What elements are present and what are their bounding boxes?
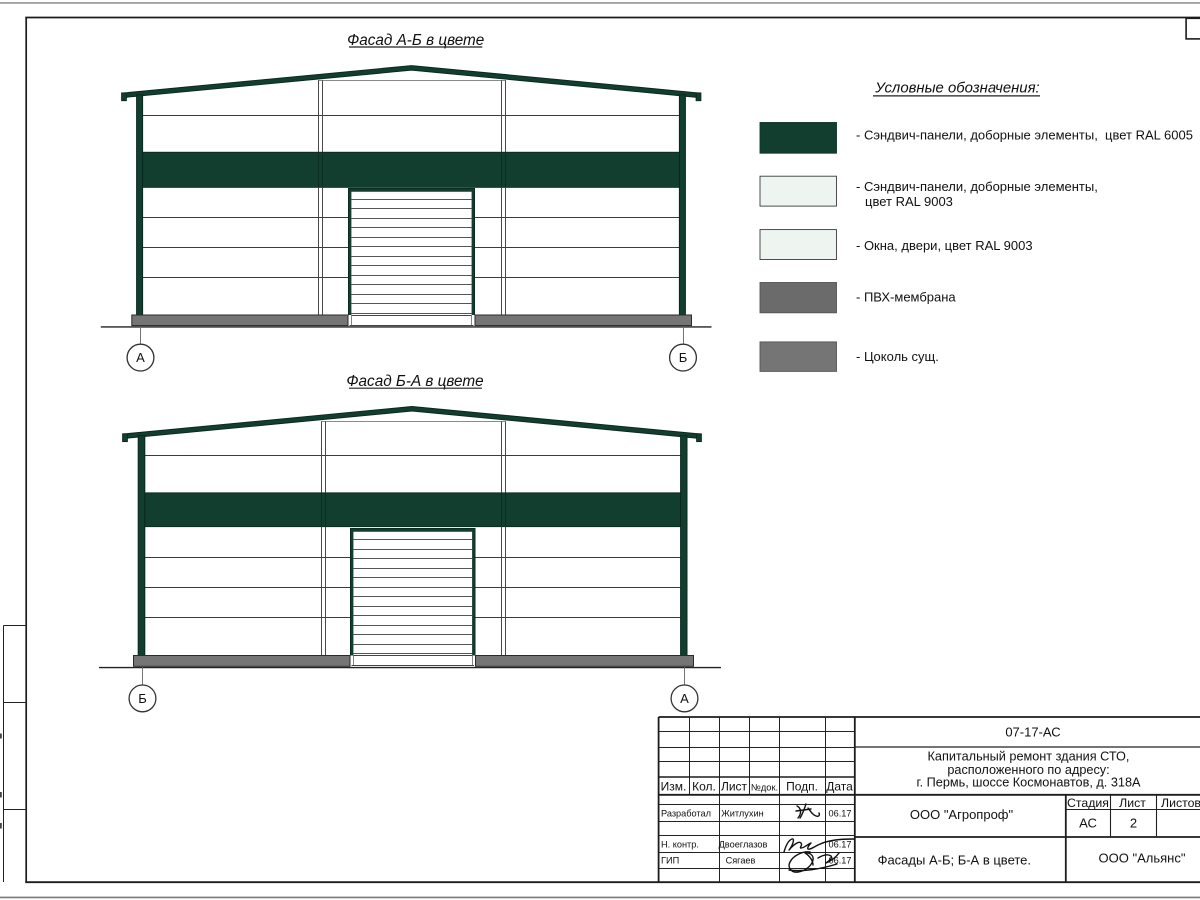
svg-text:ООО "Альянс": ООО "Альянс" xyxy=(1099,851,1186,866)
svg-text:Сягаев: Сягаев xyxy=(726,856,756,866)
svg-text:Условные обозначения:: Условные обозначения: xyxy=(874,81,1039,97)
svg-text:2: 2 xyxy=(1130,816,1137,831)
svg-text:Изм.: Изм. xyxy=(661,780,687,794)
svg-text:Н. контр.: Н. контр. xyxy=(661,840,699,850)
svg-text:Лист: Лист xyxy=(1119,796,1146,810)
svg-text:Стадия: Стадия xyxy=(1067,796,1109,810)
svg-text:Б: Б xyxy=(679,350,688,365)
svg-text:Листов: Листов xyxy=(1161,796,1200,810)
svg-text:- Сэндвич-панели, доборные эле: - Сэндвич-панели, доборные элементы, xyxy=(856,179,1098,194)
svg-text:А: А xyxy=(136,350,145,365)
svg-text:г. Пермь, шоссе Космонавтов, д: г. Пермь, шоссе Космонавтов, д. 318А xyxy=(917,776,1141,790)
svg-text:Фасады А-Б; Б-А в цвете.: Фасады А-Б; Б-А в цвете. xyxy=(878,853,1031,868)
svg-text:№док.: №док. xyxy=(751,783,778,793)
svg-text:Подп.: Подп. xyxy=(786,780,818,794)
svg-text:Лист: Лист xyxy=(721,780,748,794)
svg-text:Кол.: Кол. xyxy=(692,780,716,794)
svg-text:- Окна, двери, цвет RAL 9003: - Окна, двери, цвет RAL 9003 xyxy=(856,238,1033,253)
svg-text:Б: Б xyxy=(138,691,147,706)
svg-text:Дата: Дата xyxy=(826,780,853,794)
svg-text:цвет RAL 9003: цвет RAL 9003 xyxy=(865,194,953,209)
svg-text:Капитальный ремонт здания СТО,: Капитальный ремонт здания СТО, xyxy=(928,749,1130,763)
svg-text:А: А xyxy=(680,691,689,706)
svg-text:- ПВХ-мембрана: - ПВХ-мембрана xyxy=(856,289,956,304)
svg-text:ГИП: ГИП xyxy=(661,856,679,866)
svg-text:- Цоколь сущ.: - Цоколь сущ. xyxy=(856,349,939,364)
svg-text:АС: АС xyxy=(1079,816,1097,831)
svg-text:Разработал: Разработал xyxy=(661,809,711,819)
svg-text:Житлухин: Житлухин xyxy=(721,809,763,819)
svg-text:Двоеглазов: Двоеглазов xyxy=(719,840,768,850)
svg-text:06.17: 06.17 xyxy=(829,809,852,819)
svg-text:ООО "Агропроф": ООО "Агропроф" xyxy=(910,807,1014,822)
svg-text:07-17-АС: 07-17-АС xyxy=(1005,724,1060,739)
svg-text:- Сэндвич-панели, доборные эле: - Сэндвич-панели, доборные элементы, цве… xyxy=(856,127,1193,142)
